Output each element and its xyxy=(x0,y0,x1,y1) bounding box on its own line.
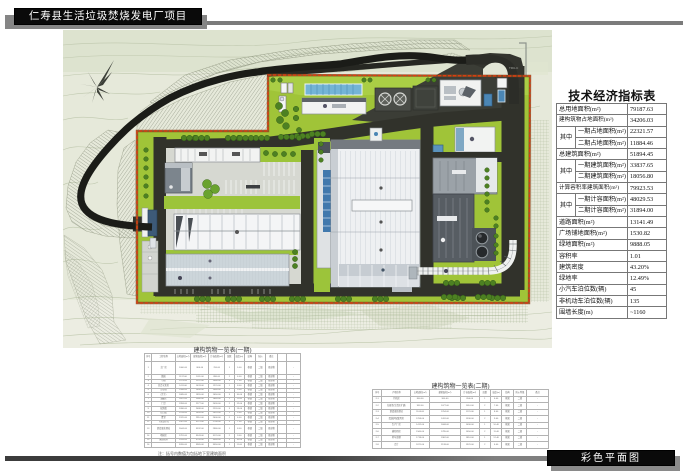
svg-text:TRU-C: TRU-C xyxy=(509,66,519,70)
